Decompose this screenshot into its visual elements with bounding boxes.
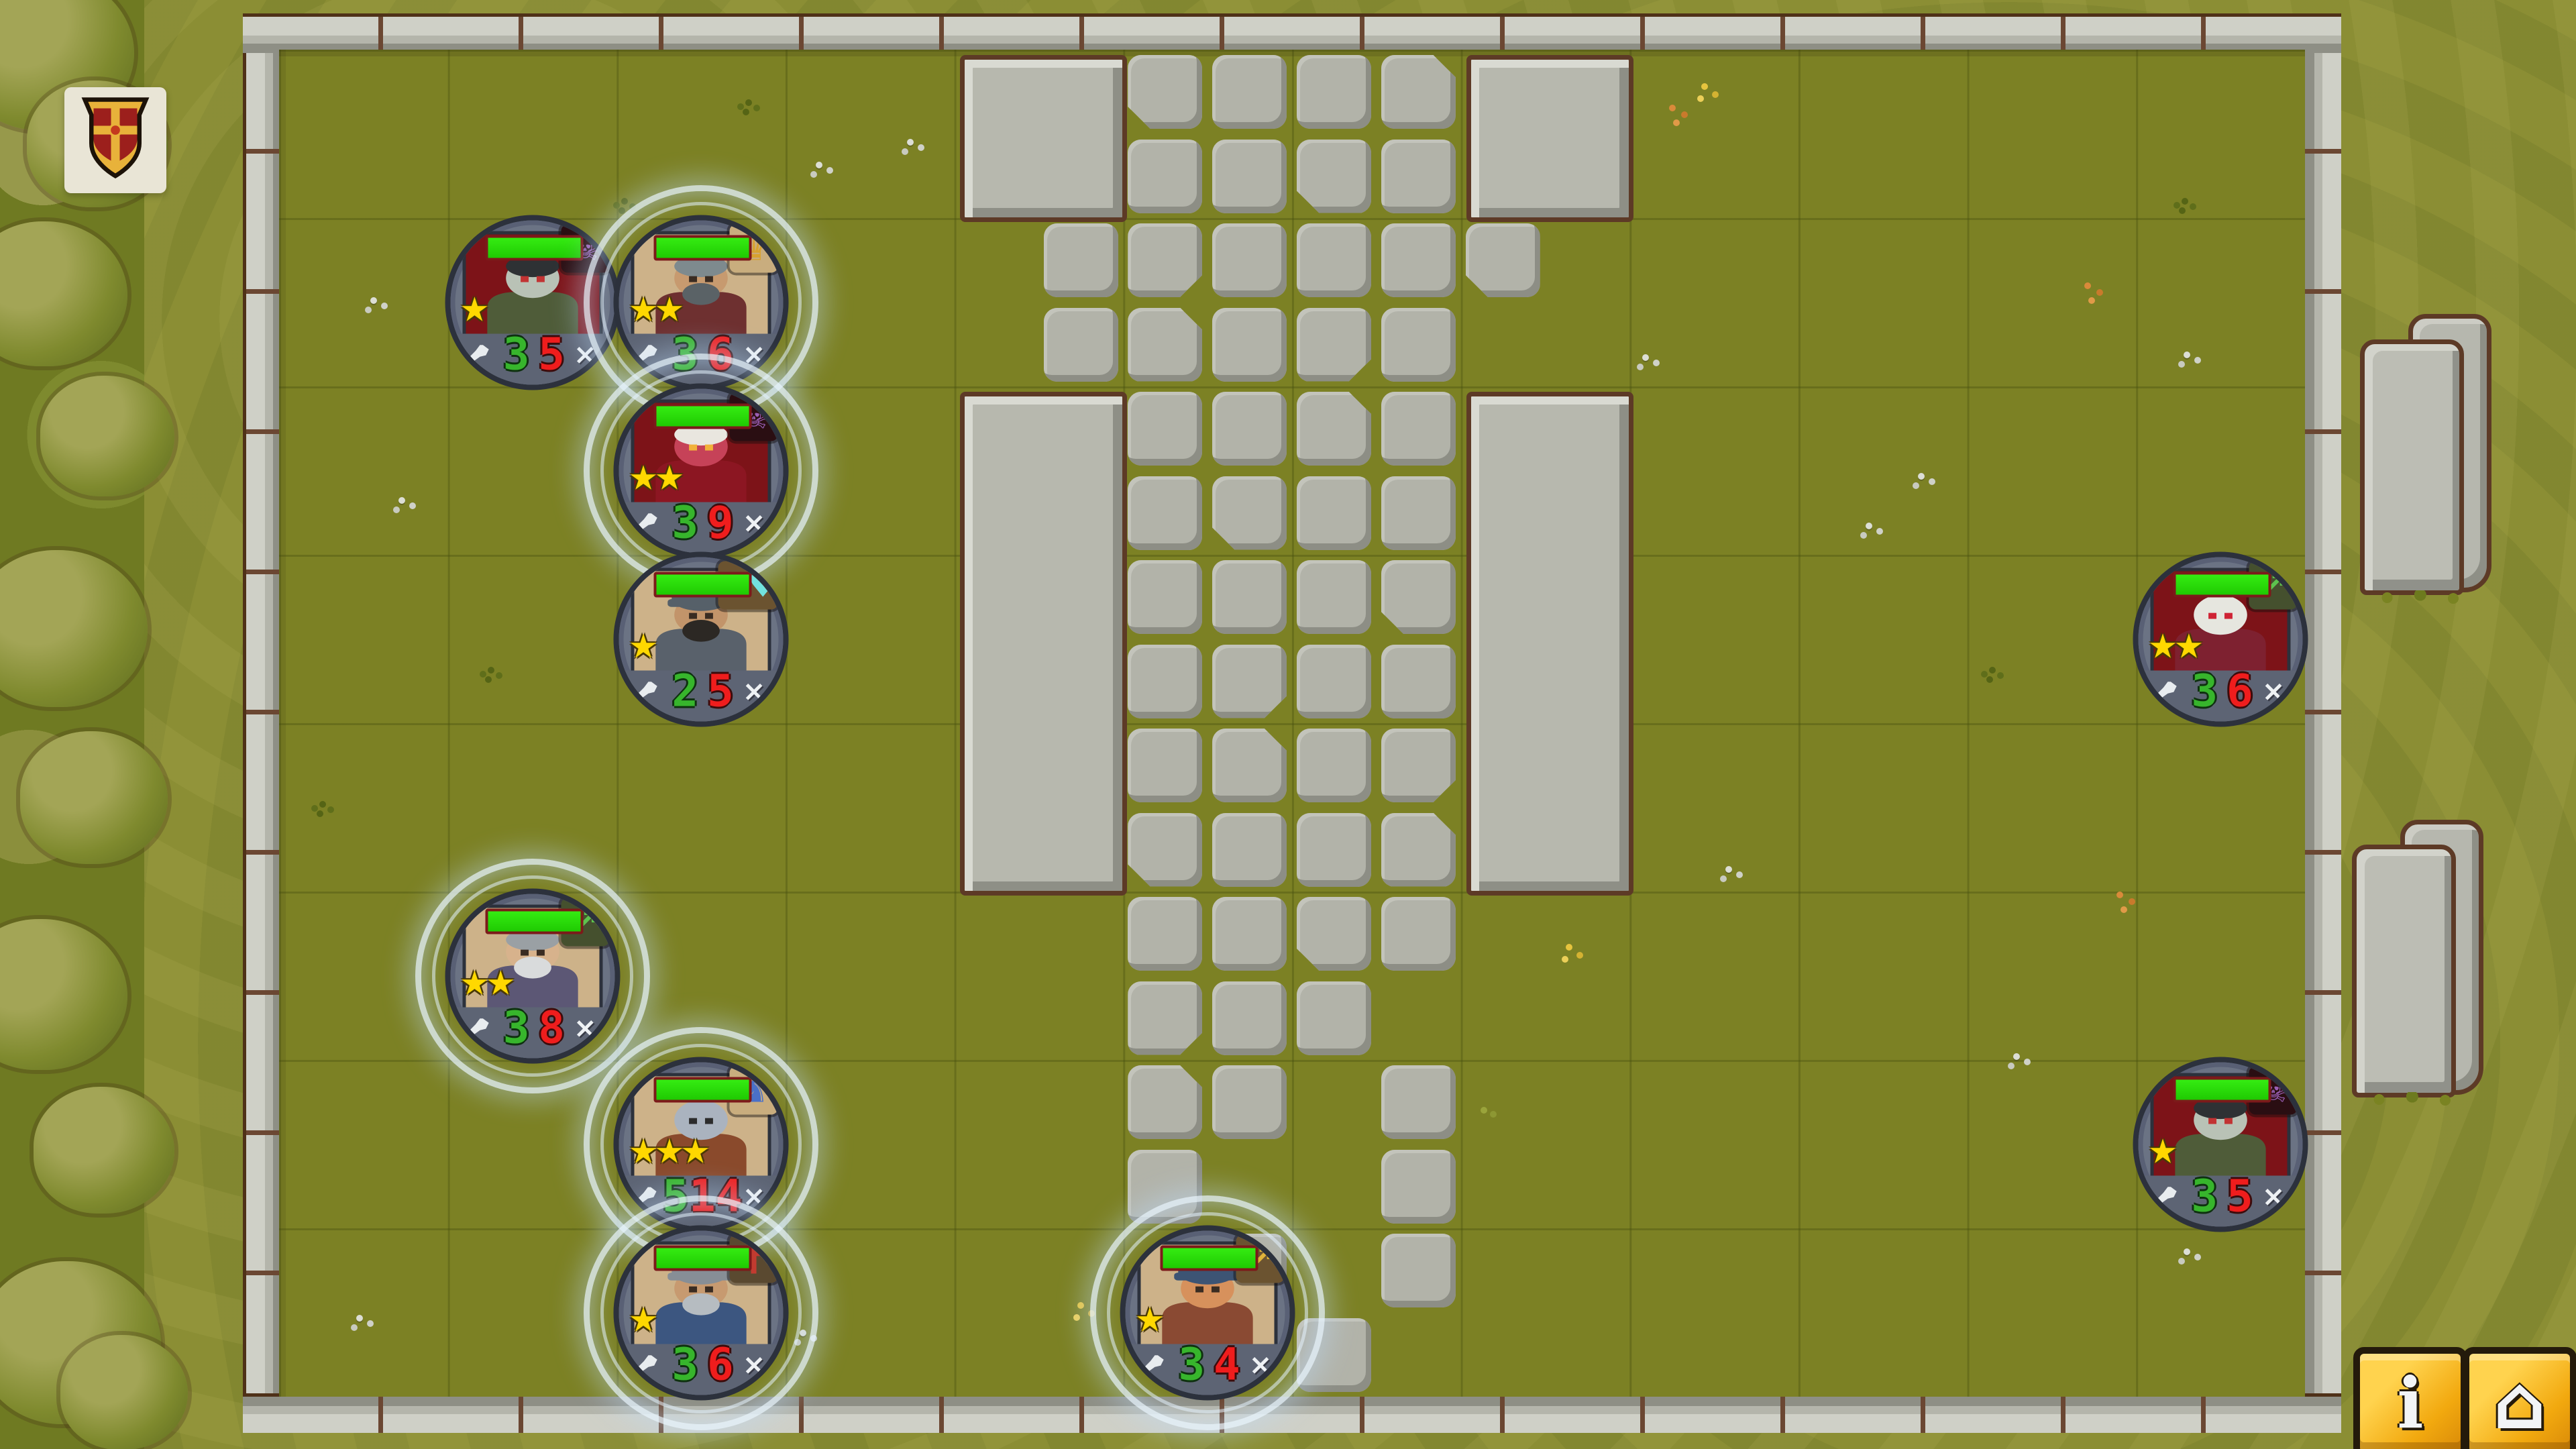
stone-path-tile: [1128, 560, 1202, 634]
health-bar: [1161, 1245, 1258, 1271]
stone-path-tile: [1381, 813, 1456, 887]
health-fill: [657, 574, 749, 594]
attack-stat: 5: [2226, 1174, 2253, 1218]
boot-icon: [465, 1015, 494, 1040]
stone-path-tile: [1128, 645, 1202, 718]
board-wall-top: [243, 13, 2341, 53]
cross-sword-icon: ×: [1248, 1348, 1272, 1381]
unit-disc: ↗ ★★ 3 8 ×: [450, 894, 614, 1058]
stone-path-tile: [1212, 223, 1287, 297]
star-rank: ★★: [629, 458, 681, 497]
home-icon: ⌂: [2493, 1360, 2546, 1446]
stone-path-tile: [1128, 392, 1202, 466]
stone-path-tile: [1128, 308, 1202, 382]
stone-path-tile: [1381, 1234, 1456, 1307]
stone-slab-obstacle: [960, 55, 1128, 222]
stat-band: 3 6 ×: [2139, 670, 2303, 721]
stone-path-tile: [1381, 392, 1456, 466]
stone-path-tile: [1381, 223, 1456, 297]
star-rank: ★: [1135, 1300, 1161, 1339]
star-rank: ★: [629, 1300, 655, 1339]
stone-path-tile: [1128, 223, 1202, 297]
stone-path-tile: [1212, 392, 1287, 466]
health-bar: [485, 235, 583, 260]
move-stat: 3: [2191, 1174, 2218, 1218]
stat-band: 3 4 ×: [1126, 1344, 1290, 1395]
health-bar: [654, 235, 752, 260]
attack-stat: 9: [707, 500, 734, 545]
unit-disc: ♥♥ ★ 2 5 ×: [619, 557, 784, 721]
stone-slab-obstacle: [1466, 55, 1634, 222]
unit-disc: ☠ ★ 3 5 ×: [2139, 1062, 2303, 1226]
unit-disc: ↗ ★ 3 4 ×: [1126, 1230, 1290, 1395]
attack-stat: 5: [707, 669, 734, 713]
stone-path-tile: [1212, 55, 1287, 129]
move-stat: 3: [503, 332, 530, 376]
tuft-decoration: [480, 671, 486, 678]
grass-tuft: [2363, 1092, 2473, 1107]
attack-stat: 4: [1214, 1342, 1240, 1387]
stone-path-tile: [1212, 729, 1287, 802]
stat-band: 3 5 ×: [2139, 1175, 2303, 1226]
flower-orange-decoration: [2116, 892, 2123, 898]
pebbles-decoration: [370, 297, 377, 304]
info-button[interactable]: i: [2353, 1347, 2467, 1449]
move-stat: 3: [672, 1342, 698, 1387]
stone-path-tile: [1212, 645, 1287, 718]
pebbles-decoration: [907, 139, 914, 146]
grass-tuft: [2371, 590, 2481, 605]
health-fill: [657, 1079, 749, 1099]
stone-path-tile: [1212, 476, 1287, 550]
stone-path-tile: [1381, 645, 1456, 718]
board-wall-right: [2302, 13, 2341, 1433]
stone-path-tile: [1212, 308, 1287, 382]
tree-canopy-blob: [0, 221, 127, 366]
tuft-decoration: [613, 202, 620, 209]
stone-path-tile: [1212, 560, 1287, 634]
boot-icon: [634, 510, 663, 535]
stone-path-tile: [1297, 560, 1371, 634]
stone-path-tile: [1466, 223, 1540, 297]
tree-canopy-blob: [0, 550, 148, 707]
star-rank: ★★★: [629, 1132, 706, 1171]
standing-stone: [2360, 314, 2491, 594]
pebbles-decoration: [398, 497, 405, 504]
stone-path-tile: [1212, 897, 1287, 971]
attack-stat: 5: [538, 332, 565, 376]
unit-disc: ☠ ★★ 3 9 ×: [619, 388, 784, 553]
stone-path-tile: [1297, 645, 1371, 718]
health-fill: [1163, 1248, 1256, 1268]
stone-path-tile: [1381, 1150, 1456, 1224]
pebbles-decoration: [1918, 473, 1925, 480]
star-rank: ★: [460, 290, 486, 329]
stone-path-tile: [1381, 476, 1456, 550]
stone-path-tile: [1381, 308, 1456, 382]
boot-icon: [465, 341, 494, 367]
flower-yellow-decoration: [1701, 83, 1708, 90]
stone-path-tile: [1128, 55, 1202, 129]
stat-band: 3 8 ×: [450, 1007, 614, 1058]
stone-path-tile: [1297, 140, 1371, 213]
health-bar: [654, 403, 752, 429]
health-fill: [657, 237, 749, 258]
health-bar: [2173, 1077, 2271, 1102]
standing-stone: [2352, 820, 2483, 1096]
player-crest-button[interactable]: [64, 87, 166, 193]
boot-icon: [1140, 1352, 1170, 1377]
board-wall-left: [243, 13, 282, 1433]
stone-path-tile: [1128, 476, 1202, 550]
health-fill: [657, 406, 749, 426]
flower-yellow-decoration: [1077, 1302, 1084, 1309]
stone-path-tile: [1128, 729, 1202, 802]
stone-path-tile: [1297, 981, 1371, 1055]
pebbles-decoration: [2184, 352, 2190, 358]
stone-path-tile: [1381, 897, 1456, 971]
stone-path-tile: [1212, 813, 1287, 887]
health-bar: [485, 908, 583, 934]
health-bar: [654, 1077, 752, 1102]
health-fill: [488, 237, 580, 258]
stone-path-tile: [1381, 729, 1456, 802]
star-rank: ★★: [2148, 627, 2200, 665]
stone-path-tile: [1044, 223, 1118, 297]
flower-yellow-decoration: [1566, 944, 1572, 951]
sprout-decoration: [1481, 1107, 1487, 1114]
cross-sword-icon: ×: [574, 1012, 597, 1044]
unit-disc: ↗ ★★ 3 6 ×: [2139, 557, 2303, 721]
stone-path-tile: [1381, 1065, 1456, 1139]
stone-path-tile: [1297, 308, 1371, 382]
stone-path-tile: [1381, 55, 1456, 129]
stone-path-tile: [1044, 308, 1118, 382]
health-bar: [654, 1245, 752, 1271]
cross-sword-icon: ×: [2261, 1180, 2285, 1213]
pebbles-decoration: [356, 1315, 363, 1322]
stone-path-tile: [1297, 897, 1371, 971]
board-wall-bottom: [243, 1393, 2341, 1433]
boot-icon: [2153, 678, 2183, 704]
attack-stat: 6: [2226, 669, 2253, 713]
move-stat: 2: [672, 669, 698, 713]
star-rank: ★★: [629, 290, 681, 329]
health-fill: [488, 911, 580, 931]
shield-crest-icon: [75, 95, 156, 185]
stone-front-slab: [2352, 845, 2456, 1097]
health-fill: [2176, 1079, 2269, 1099]
move-stat: 3: [503, 1006, 530, 1050]
flower-orange-decoration: [1669, 105, 1676, 111]
star-rank: ★: [629, 627, 655, 665]
boot-icon: [634, 678, 663, 704]
stone-path-tile: [1212, 981, 1287, 1055]
stone-path-tile: [1128, 1065, 1202, 1139]
tuft-decoration: [737, 103, 744, 110]
star-rank: ★: [2148, 1132, 2174, 1171]
stone-path-tile: [1128, 813, 1202, 887]
game-stage: ☠ ★ 3 5 × ♛ ★★ 3 6 × ☠ ★★ 3 9 × ♥♥ ★: [0, 0, 2576, 1449]
tuft-decoration: [1981, 671, 1988, 678]
star-rank: ★★: [460, 963, 512, 1002]
flower-orange-decoration: [2084, 282, 2091, 289]
stone-path-tile: [1297, 729, 1371, 802]
stone-path-tile: [1297, 813, 1371, 887]
stat-band: 3 9 ×: [619, 502, 784, 553]
pebbles-decoration: [1642, 354, 1649, 361]
attack-stat: 8: [538, 1006, 565, 1050]
health-fill: [657, 1248, 749, 1268]
stone-path-tile: [1297, 223, 1371, 297]
tree-canopy-blob: [60, 1335, 188, 1449]
stone-path-tile: [1297, 392, 1371, 466]
tree-canopy-blob: [34, 1087, 174, 1214]
tree-canopy-blob: [20, 731, 168, 864]
pebbles-decoration: [1725, 866, 1732, 873]
cross-sword-icon: ×: [742, 675, 765, 708]
stone-path-tile: [1128, 897, 1202, 971]
battle-board: ☠ ★ 3 5 × ♛ ★★ 3 6 × ☠ ★★ 3 9 × ♥♥ ★: [243, 13, 2341, 1433]
tree-canopy-blob: [40, 376, 174, 496]
stone-path-tile: [1128, 981, 1202, 1055]
boot-icon: [2153, 1183, 2183, 1209]
stone-path-tile: [1212, 140, 1287, 213]
health-bar: [2173, 572, 2271, 597]
move-stat: 3: [1178, 1342, 1205, 1387]
pebbles-decoration: [2184, 1248, 2190, 1255]
pebbles-decoration: [2013, 1053, 2020, 1060]
boot-icon: [634, 1352, 663, 1377]
health-fill: [2176, 574, 2269, 594]
stone-path-tile: [1128, 140, 1202, 213]
stone-path-tile: [1381, 140, 1456, 213]
attack-stat: 6: [707, 1342, 734, 1387]
move-stat: 3: [2191, 669, 2218, 713]
stone-path-tile: [1297, 476, 1371, 550]
tree-canopy-blob: [0, 919, 127, 1070]
stat-band: 3 6 ×: [619, 1344, 784, 1395]
tuft-decoration: [311, 805, 318, 812]
cross-sword-icon: ×: [742, 506, 765, 539]
health-bar: [654, 572, 752, 597]
stat-band: 2 5 ×: [619, 670, 784, 721]
home-button[interactable]: ⌂: [2463, 1347, 2576, 1449]
tree-strip: [0, 0, 144, 1449]
stone-path-tile: [1297, 55, 1371, 129]
stone-slab-obstacle: [1466, 392, 1634, 896]
pebbles-decoration: [816, 162, 822, 168]
unit-disc: † ★ 3 6 ×: [619, 1230, 784, 1395]
stone-slab-obstacle: [960, 392, 1128, 896]
stone-front-slab: [2360, 339, 2464, 596]
stone-path-tile: [1381, 560, 1456, 634]
tuft-decoration: [2173, 202, 2180, 209]
cross-sword-icon: ×: [742, 1348, 765, 1381]
info-icon: i: [2397, 1362, 2424, 1444]
move-stat: 3: [672, 500, 698, 545]
stone-path-tile: [1212, 1065, 1287, 1139]
pebbles-decoration: [1866, 523, 1872, 529]
cross-sword-icon: ×: [2261, 675, 2285, 708]
